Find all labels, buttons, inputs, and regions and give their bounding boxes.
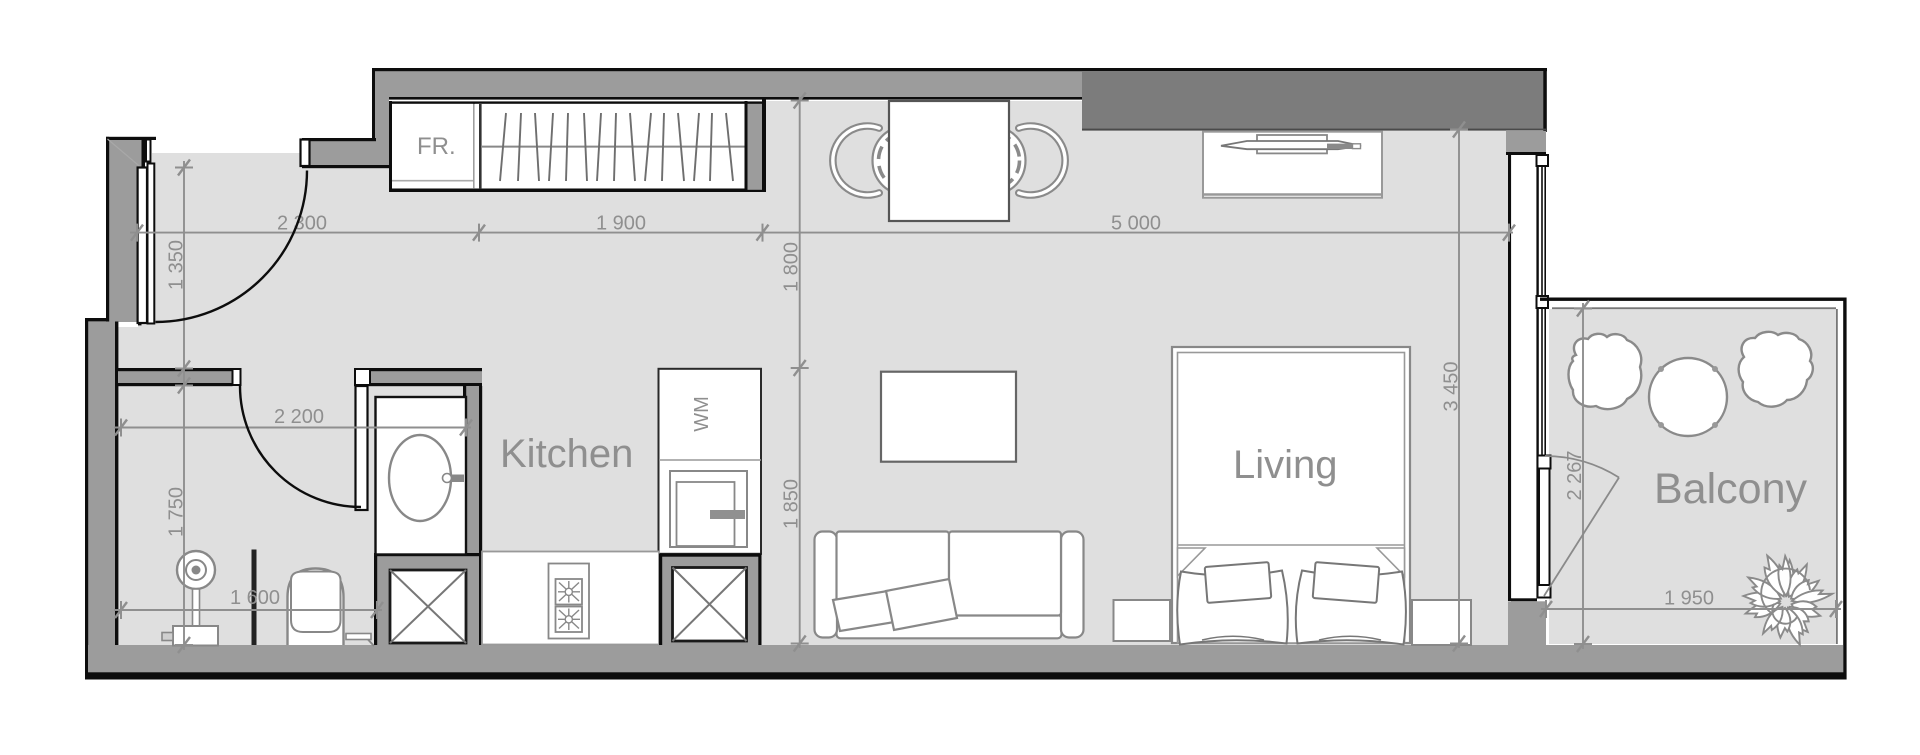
svg-text:1 600: 1 600 [230,587,280,609]
svg-text:1 750: 1 750 [166,487,188,537]
svg-text:1 350: 1 350 [166,240,188,290]
svg-text:Kitchen: Kitchen [500,432,633,476]
svg-text:5 000: 5 000 [1111,213,1161,235]
svg-text:3 450: 3 450 [1441,361,1463,411]
svg-text:2 200: 2 200 [274,406,324,428]
svg-text:1 950: 1 950 [1664,588,1714,610]
svg-text:Living: Living [1233,443,1338,487]
svg-text:2 300: 2 300 [277,213,327,235]
svg-text:1 800: 1 800 [781,242,803,292]
svg-text:1 900: 1 900 [596,213,646,235]
svg-text:WM: WM [691,396,713,432]
svg-text:1 850: 1 850 [781,479,803,529]
svg-text:FR.: FR. [417,133,456,160]
svg-text:Balcony: Balcony [1654,465,1807,513]
